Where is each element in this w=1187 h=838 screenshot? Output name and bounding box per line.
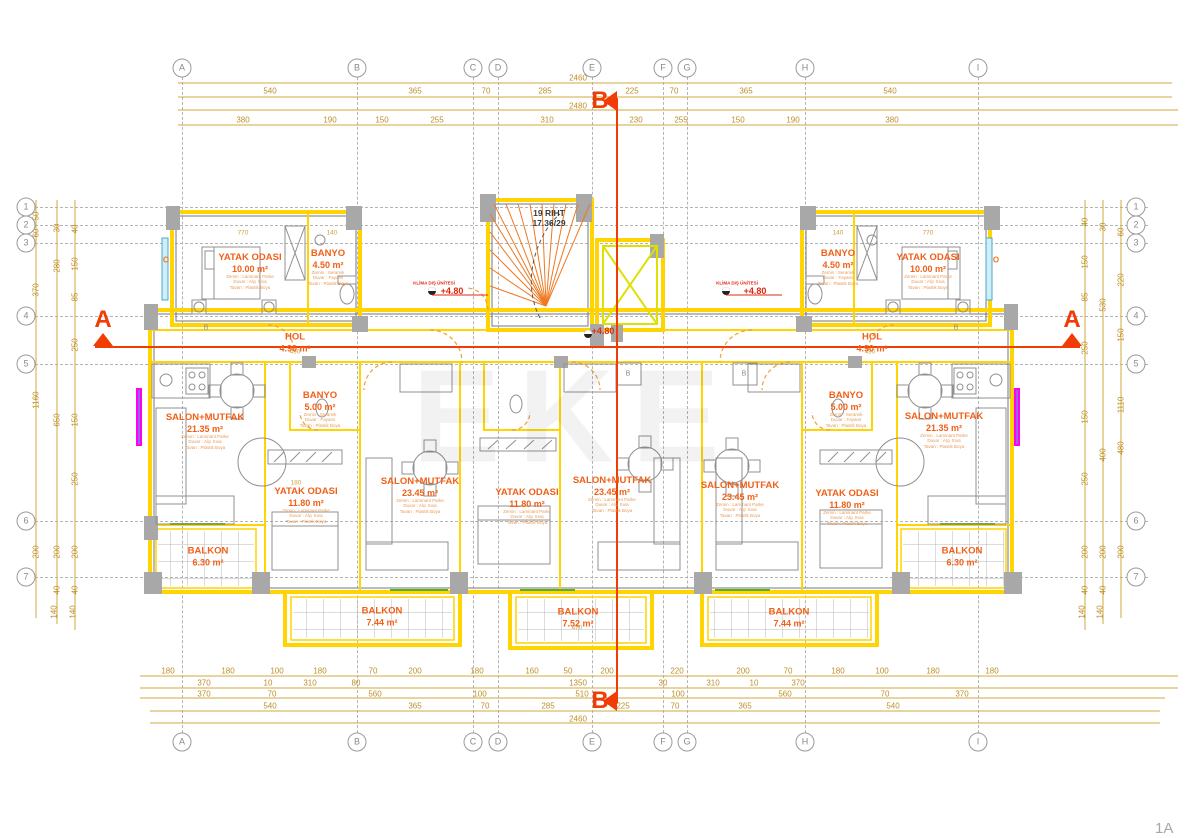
room-name: SALON+MUTFAK (573, 476, 651, 487)
dimension-text: 540 (263, 702, 276, 711)
room-name: BALKON (942, 547, 983, 558)
dimension-text-vertical: 40 (1099, 586, 1108, 595)
room-name: YATAK ODASI (218, 253, 281, 264)
dimension-text-vertical: 150 (1081, 410, 1090, 423)
room-area: 4.90 m² (856, 343, 887, 353)
dimension-text: 200 (408, 667, 421, 676)
room-area: 11.80 m² (274, 498, 337, 508)
dimension-text-vertical: 140 (69, 605, 78, 618)
room-name: BANYO (818, 249, 859, 260)
grid-bubble-e-bottom: E (583, 733, 602, 752)
room-name: YATAK ODASI (495, 488, 558, 499)
room-name: BALKON (558, 608, 599, 619)
room-label-banyo: BANYO5.00 m²Zemin : SeramikDuvar : Fayan… (826, 391, 867, 429)
dimension-text-vertical: 200 (53, 545, 62, 558)
grid-bubble-g-top: G (678, 59, 697, 78)
room-area: 21.35 m² (166, 424, 244, 434)
dimension-text: 10 (750, 679, 759, 688)
dimension-text-vertical: 1110 (1117, 397, 1126, 414)
inner-dimension-text: 140 (833, 230, 844, 237)
sheet-label: 1A (1155, 820, 1173, 837)
dimension-text: 365 (408, 702, 421, 711)
room-label-yatak-odasi: YATAK ODASI11.80 m²Zemin : Laminant Park… (495, 488, 558, 526)
room-name: SALON+MUTFAK (905, 412, 983, 423)
finish-line: Tavan : Plastik Boya (381, 509, 459, 515)
dimension-text-vertical: 140 (1078, 605, 1087, 618)
dimension-text: 180 (926, 667, 939, 676)
dimension-text: 560 (778, 690, 791, 699)
section-a-arrow-right (1062, 333, 1082, 346)
dimension-text: 285 (541, 702, 554, 711)
window-cyan-right (986, 238, 992, 300)
room-name: BANYO (300, 391, 341, 402)
dimension-text: 310 (303, 679, 316, 688)
dimension-text: 380 (236, 116, 249, 125)
room-name: SALON+MUTFAK (166, 413, 244, 424)
dimension-text: 370 (791, 679, 804, 688)
fixture-tag: B (954, 325, 959, 332)
room-name: BALKON (362, 607, 403, 618)
room-label-balkon: BALKON6.30 m² (188, 547, 229, 568)
room-area: 10.00 m² (896, 264, 959, 274)
dimension-text: 70 (482, 87, 491, 96)
dimension-text: 190 (786, 116, 799, 125)
dimension-text-vertical: 370 (32, 283, 41, 296)
room-name: BALKON (769, 608, 810, 619)
fixture-tag: B (742, 371, 747, 378)
dimension-text: 365 (739, 87, 752, 96)
dimension-text-vertical: 400 (1099, 448, 1108, 461)
room-label-salon-mutfak: SALON+MUTFAK23.45 m²Zemin : Laminant Par… (381, 477, 459, 515)
room-area: 6.30 m² (188, 557, 229, 567)
window-tag: O (993, 256, 999, 265)
room-label-yatak-odasi: YATAK ODASI11.80 m²Zemin : Laminant Park… (815, 489, 878, 527)
dimension-text: 370 (197, 679, 210, 688)
stair-riser-count: 19 RIHT (533, 208, 565, 218)
ac-unit-label: KLİMA DIŞ ÜNİTESİ (413, 281, 455, 286)
room-label-balkon: BALKON7.44 m² (362, 607, 403, 628)
grid-bubble-h-top: H (796, 59, 815, 78)
room-label-salon-mutfak: SALON+MUTFAK21.35 m²Zemin : Laminant Par… (905, 412, 983, 450)
grid-bubble-i-top: I (969, 59, 988, 78)
dimension-text-vertical: 150 (1117, 328, 1126, 341)
dimension-text: 370 (955, 690, 968, 699)
grid-bubble-h-bottom: H (796, 733, 815, 752)
dimension-text-vertical: 150 (71, 413, 80, 426)
room-name: YATAK ODASI (274, 487, 337, 498)
room-name: SALON+MUTFAK (701, 481, 779, 492)
dimension-text: 100 (270, 667, 283, 676)
room-label-banyo: BANYO4.50 m²Zemin : SeramikDuvar : Fayan… (818, 249, 859, 287)
elevator (603, 246, 657, 324)
grid-bubble-3-left: 3 (17, 234, 36, 253)
room-label-balkon: BALKON7.44 m² (769, 608, 810, 629)
dimension-text-vertical: 250 (71, 338, 80, 351)
level-text: +4.80 (441, 286, 464, 296)
finish-line: Tavan : Plastik Boya (218, 285, 281, 291)
finish-line: Tavan : Plastik Boya (573, 508, 651, 514)
section-a-label-left: A (94, 306, 111, 334)
finish-line: Tavan : Plastik Boya (300, 423, 341, 429)
fixture-tag: B (204, 325, 209, 332)
room-label-banyo: BANYO5.00 m²Zemin : SeramikDuvar : Fayan… (300, 391, 341, 429)
dimension-text: 70 (369, 667, 378, 676)
room-label-salon-mutfak: SALON+MUTFAK21.35 m²Zemin : Laminant Par… (166, 413, 244, 451)
grid-bubble-i-bottom: I (969, 733, 988, 752)
grid-bubble-g-bottom: G (678, 733, 697, 752)
section-a-arrow-left (93, 333, 113, 346)
inner-dimension-text: 140 (327, 230, 338, 237)
grid-bubble-6-left: 6 (17, 512, 36, 531)
room-label-salon-mutfak: SALON+MUTFAK23.45 m²Zemin : Laminant Par… (701, 481, 779, 519)
grid-bubble-b-bottom: B (348, 733, 367, 752)
dimension-text: 310 (540, 116, 553, 125)
room-label-balkon: BALKON6.30 m² (942, 547, 983, 568)
room-area: 11.80 m² (815, 500, 878, 510)
dimension-text-vertical: 40 (1081, 218, 1090, 227)
dimension-text-vertical: 30 (1099, 223, 1108, 232)
dimension-text: 180 (831, 667, 844, 676)
dimension-text-vertical: 200 (1081, 545, 1090, 558)
dimension-text: 255 (430, 116, 443, 125)
grid-bubble-f-bottom: F (654, 733, 673, 752)
room-name: YATAK ODASI (896, 253, 959, 264)
room-area: 4.50 m² (308, 260, 349, 270)
dimension-text-vertical: 30 (53, 224, 62, 233)
finish-line: Tavan : Plastik Boya (826, 423, 867, 429)
dimension-text: 380 (885, 116, 898, 125)
dimension-text: 70 (481, 702, 490, 711)
dimension-text-vertical: 140 (50, 605, 59, 618)
dimension-text: 2480 (569, 102, 587, 111)
level-text: +4.80 (744, 286, 767, 296)
ac-unit-label: KLİMA DIŞ ÜNİTESİ (716, 281, 758, 286)
dimension-text-vertical: 200 (1117, 545, 1126, 558)
dimension-text: 540 (263, 87, 276, 96)
room-label-hol: HOL4.90 m² (856, 333, 887, 354)
window-cyan-left (162, 238, 168, 300)
dimension-text-vertical: 200 (71, 545, 80, 558)
room-area: 23.45 m² (701, 492, 779, 502)
room-area: 7.44 m² (362, 617, 403, 627)
dimension-text: 370 (197, 690, 210, 699)
room-area: 10.00 m² (218, 264, 281, 274)
grid-bubble-a-top: A (173, 59, 192, 78)
grid-bubble-b-top: B (348, 59, 367, 78)
dimension-text-vertical: 40 (53, 586, 62, 595)
dimension-text: 100 (875, 667, 888, 676)
grid-bubble-1-left: 1 (17, 198, 36, 217)
dimension-text-vertical: 200 (32, 545, 41, 558)
dimension-text: 230 (629, 116, 642, 125)
grid-bubble-7-right: 7 (1127, 568, 1146, 587)
room-area: 23.45 m² (573, 487, 651, 497)
grid-bubble-c-top: C (464, 59, 483, 78)
dimension-text: 180 (161, 667, 174, 676)
grid-bubble-4-left: 4 (17, 307, 36, 326)
dimension-text-vertical: 150 (1081, 255, 1090, 268)
dimension-text: 70 (268, 690, 277, 699)
finish-line: Tavan : Plastik Boya (701, 513, 779, 519)
room-label-banyo: BANYO4.50 m²Zemin : SeramikDuvar : Fayan… (308, 249, 349, 287)
stair-label: 19 RIHT 17.36/29 (532, 209, 565, 229)
dimension-text: 2460 (569, 74, 587, 83)
room-name: HOL (856, 333, 887, 344)
dimension-text-vertical: 1160 (32, 391, 41, 408)
dimension-text-vertical: 60 (1117, 228, 1126, 237)
grid-bubble-4-right: 4 (1127, 307, 1146, 326)
dimension-text: 180 (985, 667, 998, 676)
dimension-text-vertical: 40 (71, 586, 80, 595)
level-text: +4.80 (592, 326, 615, 336)
finish-line: Tavan : Plastik Boya (896, 285, 959, 291)
room-area: 21.35 m² (905, 423, 983, 433)
room-label-yatak-odasi: YATAK ODASI10.00 m²Zemin : Laminant Park… (218, 253, 281, 291)
finish-line: Tavan : Plastik Boya (166, 445, 244, 451)
room-area: 23.45 m² (381, 488, 459, 498)
dimension-text-vertical: 280 (53, 259, 62, 272)
room-name: BALKON (188, 547, 229, 558)
grid-bubble-e-top: E (583, 59, 602, 78)
dimension-text: 150 (731, 116, 744, 125)
dimension-text: 285 (538, 87, 551, 96)
dimension-text-vertical: 200 (1099, 545, 1108, 558)
grid-bubble-d-top: D (489, 59, 508, 78)
grid-bubble-3-right: 3 (1127, 234, 1146, 253)
grid-bubble-7-left: 7 (17, 568, 36, 587)
finish-line: Tavan : Plastik Boya (308, 281, 349, 287)
dimension-text: 180 (470, 667, 483, 676)
grid-bubble-2-right: 2 (1127, 216, 1146, 235)
dimension-text: 70 (670, 87, 679, 96)
inner-dimension-text: 770 (238, 230, 249, 237)
dimension-text: 540 (883, 87, 896, 96)
fixture-tag: B (626, 371, 631, 378)
dimension-text-vertical: 150 (71, 257, 80, 270)
stair-rise-run: 17.36/29 (532, 218, 565, 228)
dimension-text: 365 (738, 702, 751, 711)
finish-line: Tavan : Plastik Boya (905, 444, 983, 450)
grid-bubble-1-right: 1 (1127, 198, 1146, 217)
dimension-text-vertical: 530 (1099, 298, 1108, 311)
dimension-text-vertical: 250 (1081, 472, 1090, 485)
dimension-text: 180 (313, 667, 326, 676)
dimension-text: 50 (564, 667, 573, 676)
dimension-text: 10 (264, 679, 273, 688)
dimension-text: 200 (600, 667, 613, 676)
room-area: 7.44 m² (769, 618, 810, 628)
dimension-text: 225 (616, 702, 629, 711)
room-name: SALON+MUTFAK (381, 477, 459, 488)
dimension-text: 365 (408, 87, 421, 96)
room-area: 7.52 m² (558, 618, 599, 628)
dimension-text-vertical: 220 (1117, 273, 1126, 286)
watermark: EKE (412, 341, 737, 492)
room-label-balkon: BALKON7.52 m² (558, 608, 599, 629)
room-area: 4.50 m² (818, 260, 859, 270)
room-area: 5.00 m² (300, 402, 341, 412)
room-label-salon-mutfak: SALON+MUTFAK23.45 m²Zemin : Laminant Par… (573, 476, 651, 514)
dimension-text: 190 (323, 116, 336, 125)
grid-bubble-d-bottom: D (489, 733, 508, 752)
room-name: HOL (279, 333, 310, 344)
dimension-text: 255 (674, 116, 687, 125)
section-b-arrow-bottom (603, 691, 617, 711)
dimension-text-vertical: 250 (71, 472, 80, 485)
dimension-text: 70 (784, 667, 793, 676)
finish-line: Tavan : Plastik Boya (818, 281, 859, 287)
dimension-text-vertical: 650 (53, 413, 62, 426)
dimension-text: 70 (881, 690, 890, 699)
grid-bubble-2-left: 2 (17, 216, 36, 235)
room-area: 5.00 m² (826, 402, 867, 412)
grid-bubble-6-right: 6 (1127, 512, 1146, 531)
dimension-text: 70 (671, 702, 680, 711)
window-tag: O (163, 256, 169, 265)
section-a-label-right: A (1063, 306, 1080, 334)
room-label-yatak-odasi: YATAK ODASI10.00 m²Zemin : Laminant Park… (896, 253, 959, 291)
dimension-text-vertical: 40 (1081, 586, 1090, 595)
dimension-text: 510 (575, 690, 588, 699)
dimension-text-vertical: 140 (1096, 605, 1105, 618)
grid-bubble-c-bottom: C (464, 733, 483, 752)
room-area: 6.30 m² (942, 557, 983, 567)
dimension-text-vertical: 85 (1081, 293, 1090, 302)
dimension-text: 310 (706, 679, 719, 688)
grid-bubble-5-left: 5 (17, 355, 36, 374)
dimension-text: 220 (670, 667, 683, 676)
grid-bubble-f-top: F (654, 59, 673, 78)
dimension-text-vertical: 480 (1117, 441, 1126, 454)
dimension-text: 200 (736, 667, 749, 676)
finish-line: Tavan : Plastik Boya (274, 519, 337, 525)
finish-line: Tavan : Plastik Boya (815, 521, 878, 527)
dimension-text: 225 (625, 87, 638, 96)
room-label-hol: HOL4.90 m² (279, 333, 310, 354)
room-area: 4.90 m² (279, 343, 310, 353)
dimension-text: 30 (659, 679, 668, 688)
section-b-arrow-top (603, 91, 617, 111)
room-name: BANYO (826, 391, 867, 402)
dimension-text: 80 (352, 679, 361, 688)
dimension-text: 150 (375, 116, 388, 125)
dimension-text-vertical: 85 (71, 293, 80, 302)
dimension-text-vertical: 40 (71, 225, 80, 234)
floor-plan-canvas: AABBCCDDEEFFGGHHII11223344556677 (0, 0, 1187, 838)
grid-bubble-5-right: 5 (1127, 355, 1146, 374)
room-name: BANYO (308, 249, 349, 260)
room-name: YATAK ODASI (815, 489, 878, 500)
dimension-text: 180 (221, 667, 234, 676)
balcony-door-sills (170, 524, 995, 590)
inner-dimension-text: 770 (923, 230, 934, 237)
dimension-text: 100 (473, 690, 486, 699)
finish-line: Tavan : Plastik Boya (495, 520, 558, 526)
grid-bubble-a-bottom: A (173, 733, 192, 752)
room-label-yatak-odasi: YATAK ODASI11.80 m²Zemin : Laminant Park… (274, 487, 337, 525)
dimension-text: 100 (671, 690, 684, 699)
dimension-text: 1350 (569, 679, 587, 688)
dimension-text: 2460 (569, 715, 587, 724)
dimension-text: 560 (368, 690, 381, 699)
dimension-text: 160 (525, 667, 538, 676)
room-area: 11.80 m² (495, 499, 558, 509)
dimension-text: 540 (886, 702, 899, 711)
